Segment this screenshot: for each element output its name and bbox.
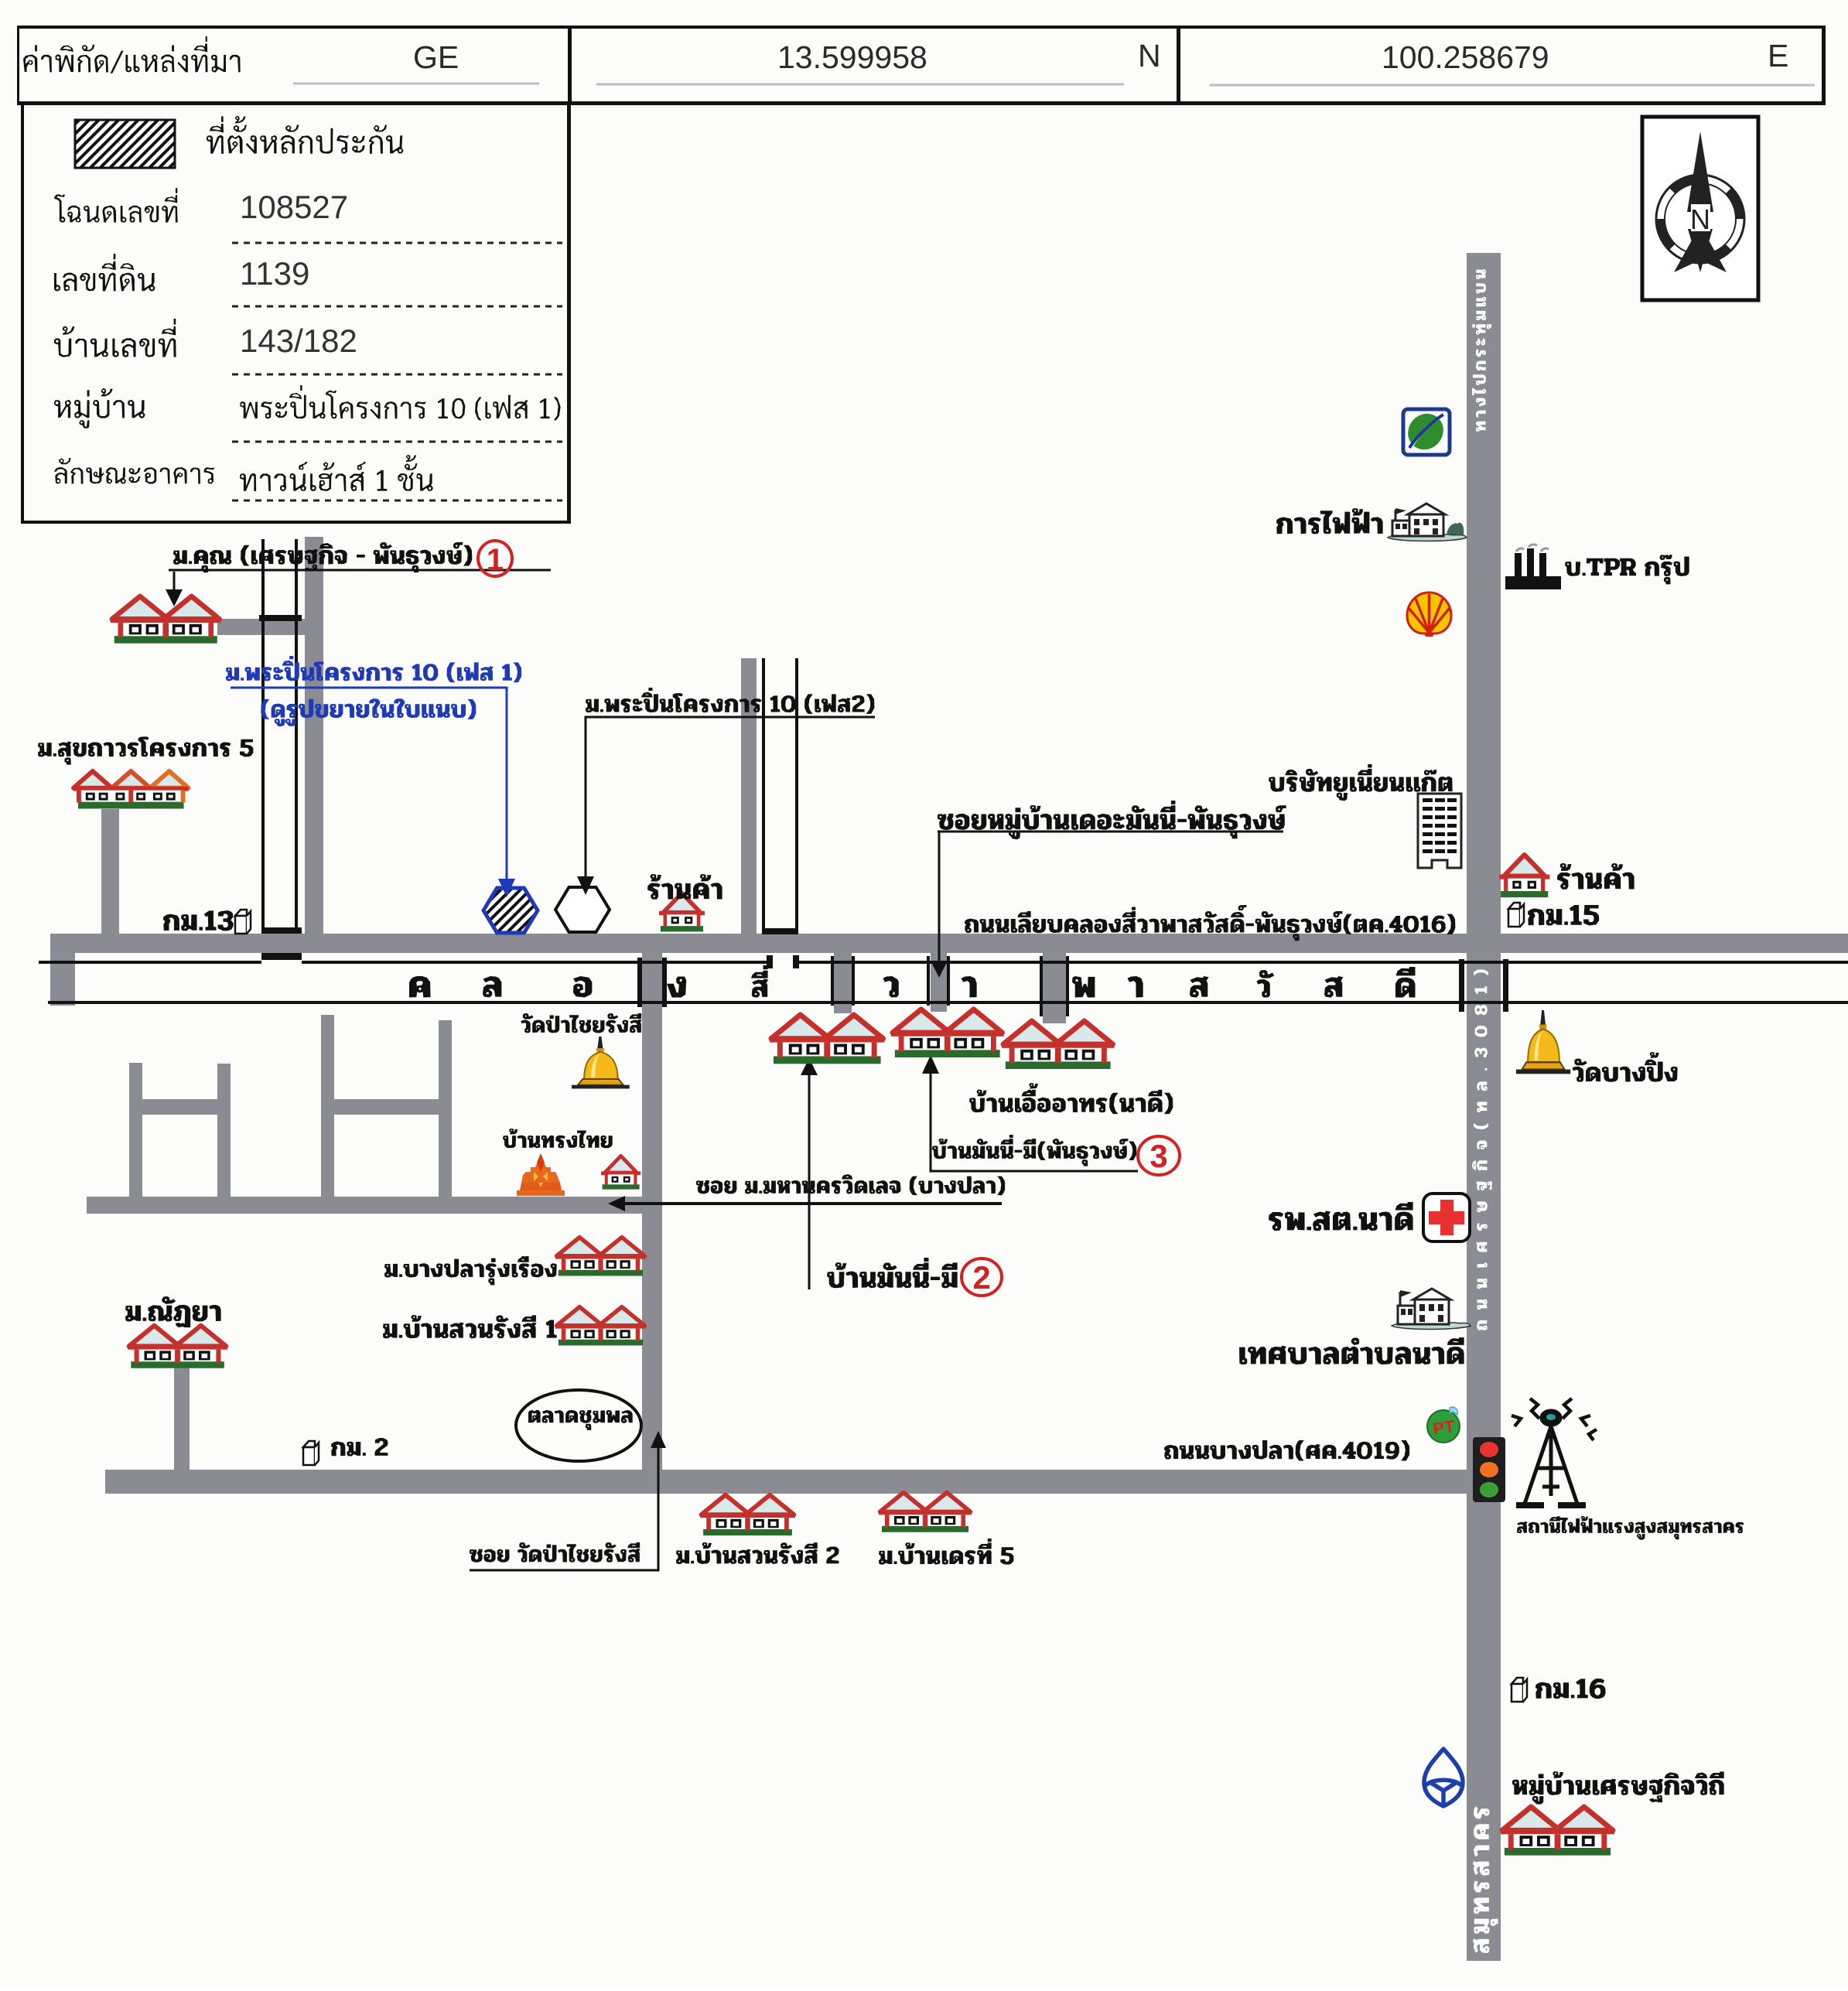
svg-text:143/182: 143/182 xyxy=(240,323,357,359)
svg-text:1139: 1139 xyxy=(240,255,309,292)
svg-text:N: N xyxy=(1138,38,1161,73)
svg-text:E: E xyxy=(1768,38,1788,73)
svg-text:N: N xyxy=(1690,203,1710,235)
svg-text:1: 1 xyxy=(487,543,504,577)
svg-text:2: 2 xyxy=(972,1259,990,1296)
svg-text:3: 3 xyxy=(1149,1138,1167,1174)
svg-text:PT: PT xyxy=(1432,1416,1457,1439)
svg-text:108527: 108527 xyxy=(240,189,348,225)
svg-text:100.258679: 100.258679 xyxy=(1382,39,1549,75)
svg-text:13.599958: 13.599958 xyxy=(777,39,927,75)
svg-text:GE: GE xyxy=(413,39,459,75)
